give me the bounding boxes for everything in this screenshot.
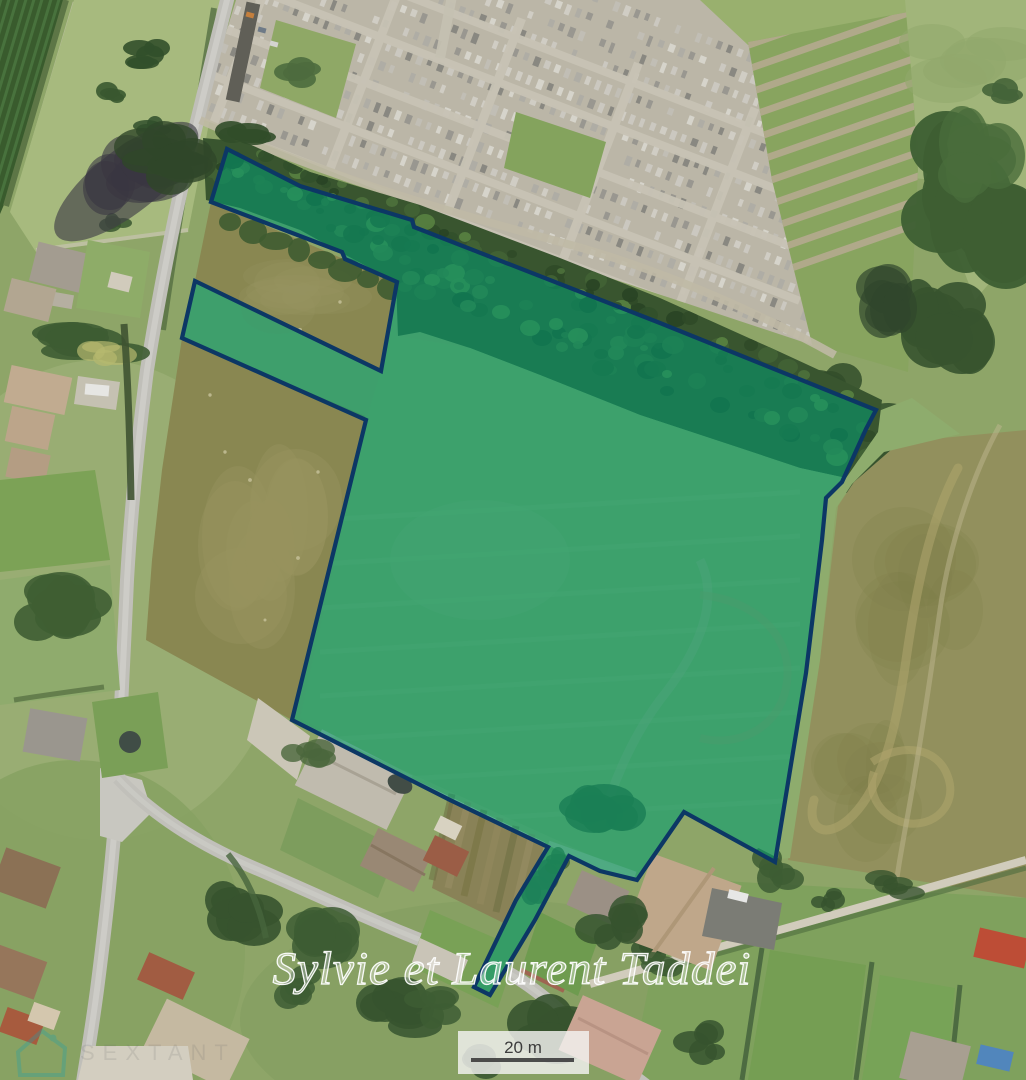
svg-text:20 m: 20 m [504,1038,542,1057]
svg-text:SEXTANT: SEXTANT [80,1040,236,1065]
svg-text:Sylvie et Laurent Taddei: Sylvie et Laurent Taddei [273,943,752,995]
